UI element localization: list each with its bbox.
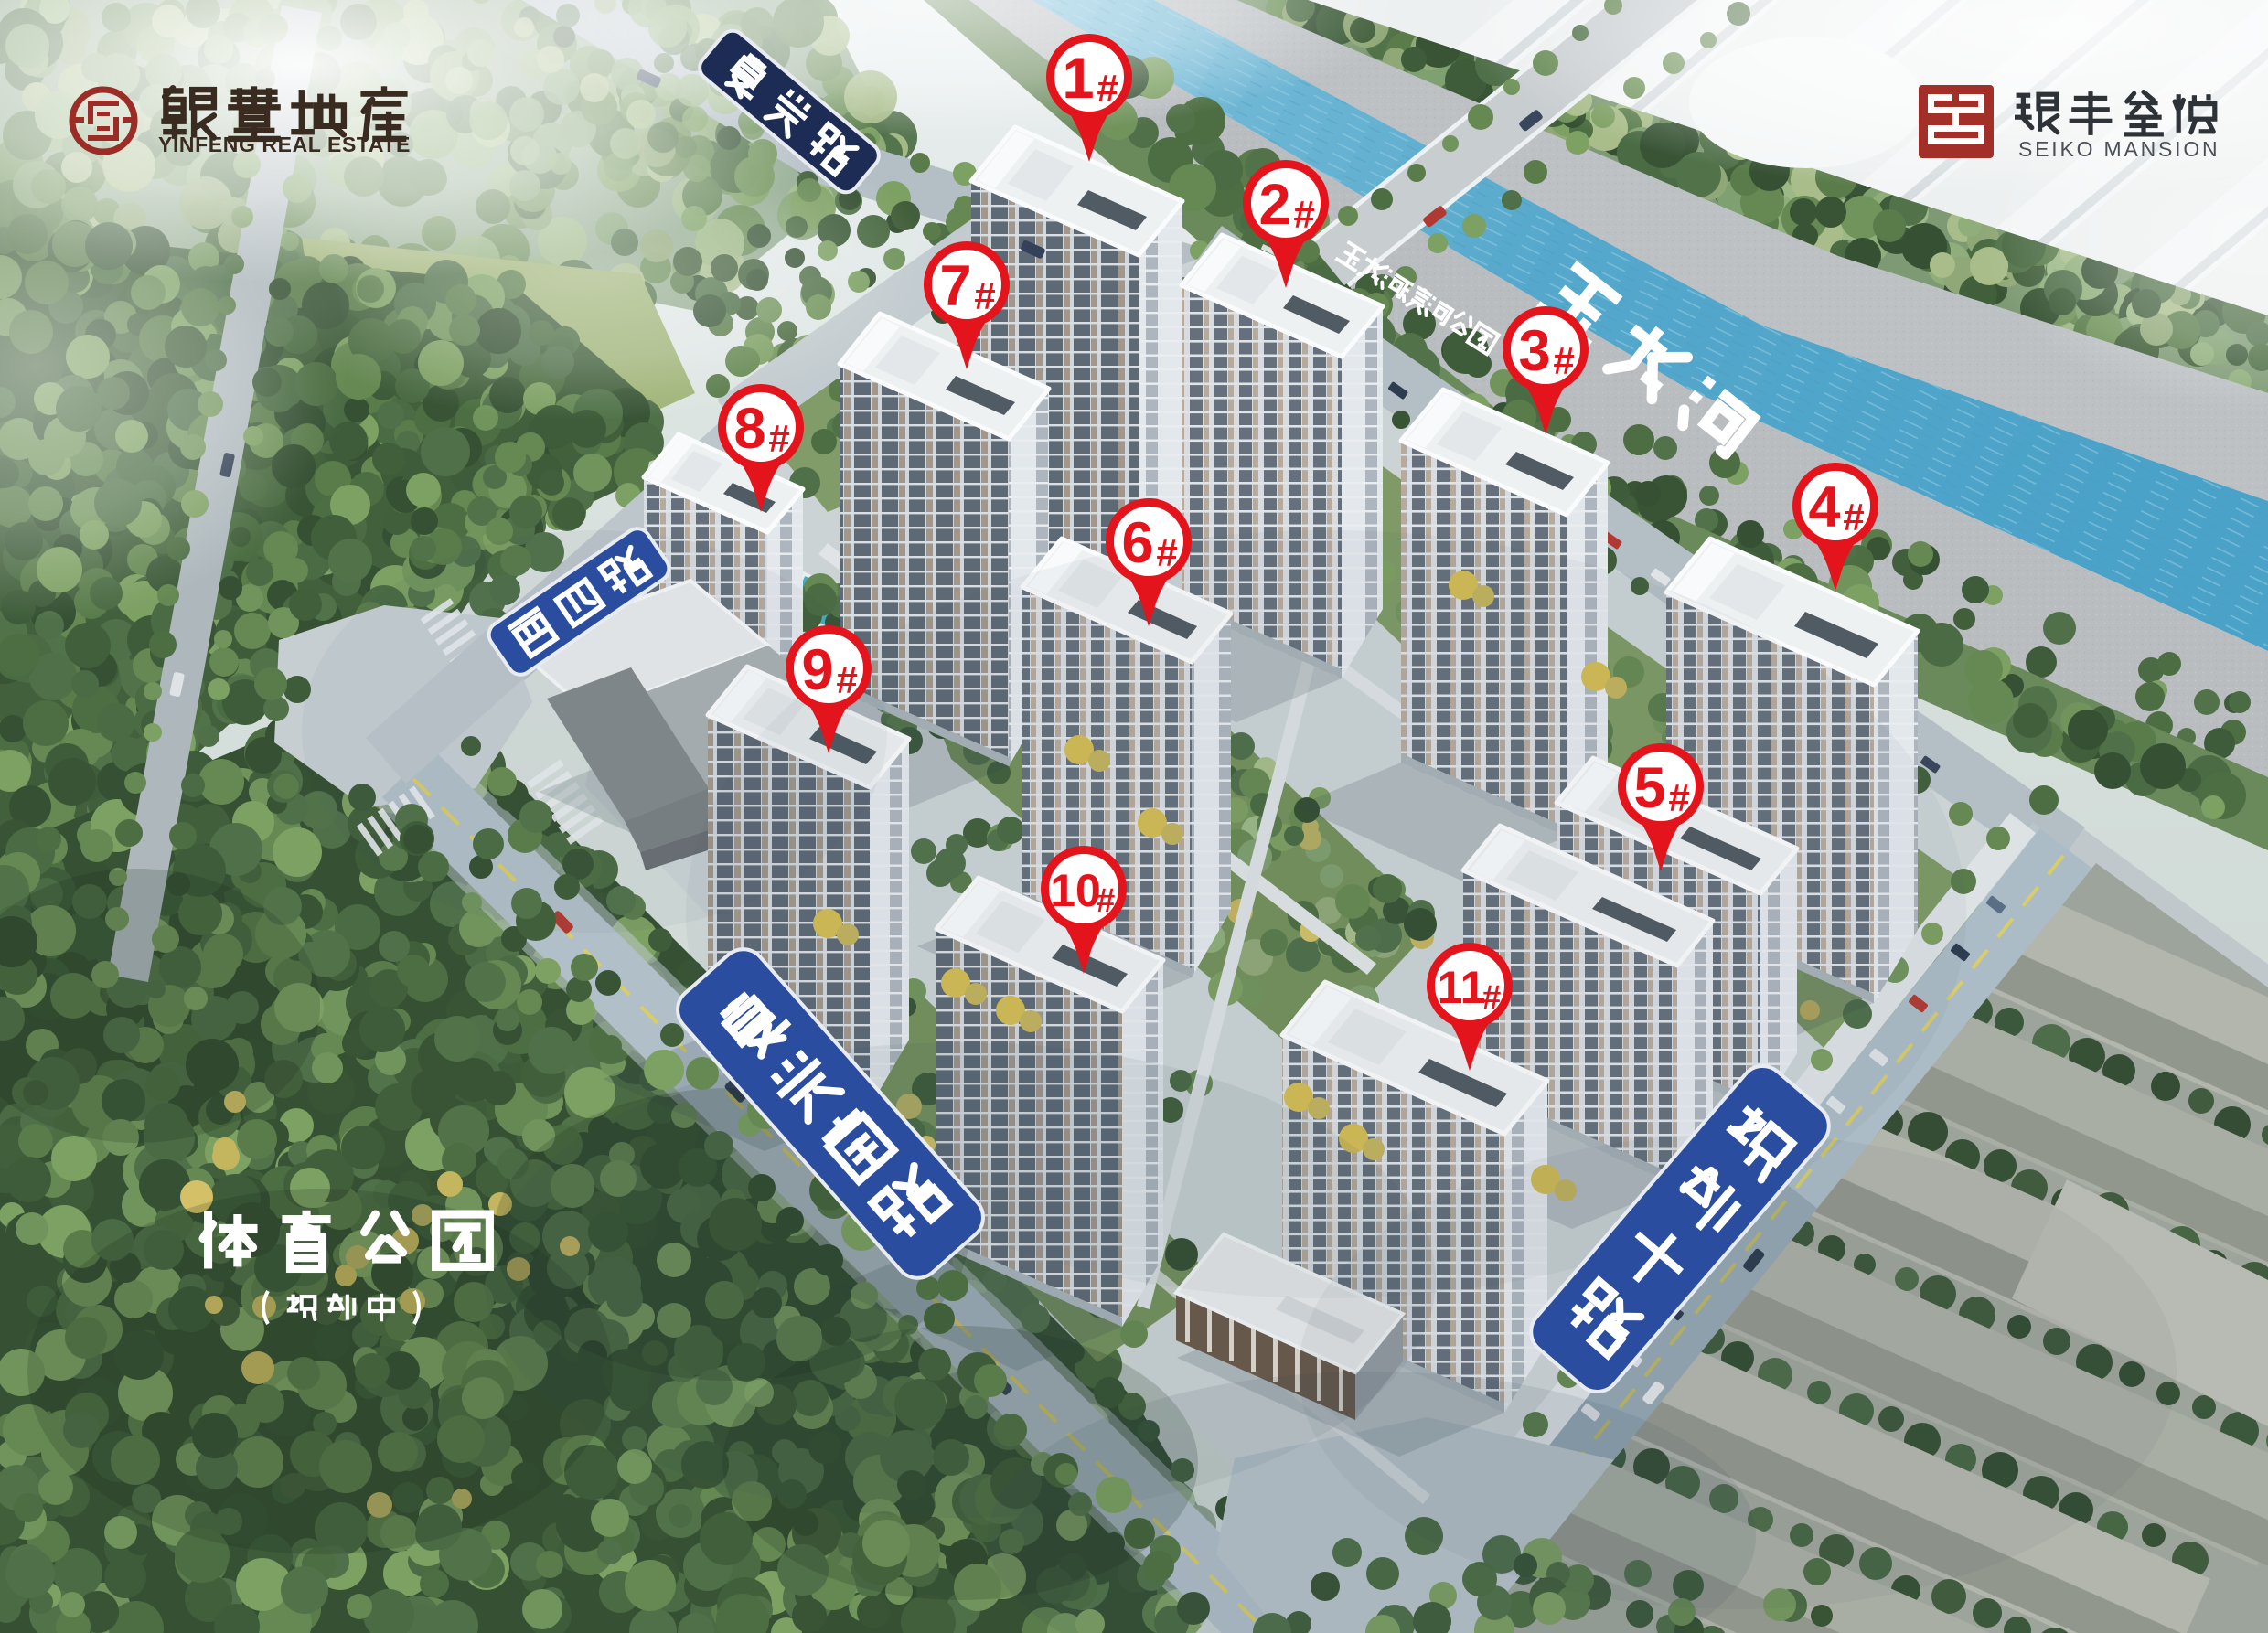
svg-text:5: 5 [1633,756,1665,820]
svg-text:3: 3 [1518,319,1550,383]
svg-text:11: 11 [1438,962,1486,1013]
svg-text:10: 10 [1050,865,1101,916]
svg-text:#: # [768,417,789,460]
svg-text:SEIKO MANSION: SEIKO MANSION [2018,137,2220,161]
svg-text:#: # [1668,776,1689,819]
svg-text:#: # [1482,978,1502,1016]
svg-text:#: # [1156,531,1177,574]
svg-text:#: # [1097,881,1116,919]
svg-text:#: # [1097,67,1118,110]
svg-text:2: 2 [1258,173,1290,237]
svg-text:1: 1 [1062,47,1094,111]
svg-text:7: 7 [939,254,971,318]
svg-text:#: # [1293,193,1314,236]
svg-text:8: 8 [733,397,765,461]
svg-text:#: # [836,658,857,701]
svg-text:YINFENG REAL ESTATE: YINFENG REAL ESTATE [158,133,411,156]
svg-text:9: 9 [801,638,833,702]
svg-text:#: # [1553,339,1574,382]
svg-text:#: # [974,274,995,317]
svg-text:#: # [1843,496,1864,539]
svg-text:6: 6 [1121,511,1153,575]
svg-text:4: 4 [1808,475,1840,539]
